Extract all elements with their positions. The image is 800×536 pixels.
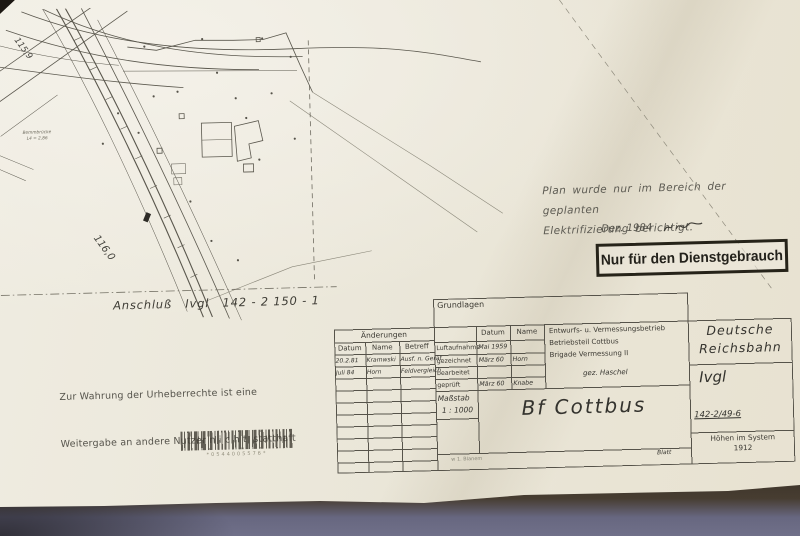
paper-sheet: 115,9 116,0 Bemmbrücke L4 = 2,86 Plan wu…: [0, 0, 800, 536]
drawing-border-dashed: [308, 40, 314, 280]
bridge-label-line1: Bemmbrücke: [22, 129, 51, 136]
buildings: [170, 121, 264, 185]
barcode: *0544005576*: [180, 429, 293, 459]
railway-tracks: [0, 0, 487, 326]
bridge-label-line2: L4 = 2,86: [27, 135, 48, 142]
dr-name-line1: Deutsche: [688, 321, 792, 339]
grundlagen-label: Grundlagen: [437, 300, 484, 310]
photo-of-railway-plan: 115,9 116,0 Bemmbrücke L4 = 2,86 Plan wu…: [0, 0, 800, 536]
aenderungen-header-betreff: Betreff: [399, 342, 434, 351]
basis-header-name: Name: [510, 327, 544, 336]
km-label-116-0: 116,0: [91, 233, 117, 263]
signature-icon: [662, 218, 704, 235]
aenderung-row2-betreff: Feldvergleich: [401, 367, 441, 375]
basis-row2-name: Horn: [513, 356, 528, 363]
basis-row2-label: gezeichnet: [437, 357, 472, 365]
massstab-value: 1 : 1000: [442, 405, 473, 415]
basis-row1-label: Luftaufnahme: [436, 344, 480, 352]
revision-date: Dez. 1984: [601, 222, 652, 234]
aenderung-row2-datum: Juli 84: [336, 369, 355, 376]
ivgl-label: Ivgl: [699, 368, 726, 387]
copyright-line1: Zur Wahrung der Urheberrechte ist eine: [59, 384, 294, 406]
revision-date-row: Dez. 1984: [601, 218, 704, 237]
aenderung-row2-name: Horn: [367, 369, 382, 376]
basis-row4-name: Knabe: [513, 380, 533, 388]
form-print-note: w 1. Blanem: [451, 456, 482, 463]
map-labels: 115,9 116,0 Bemmbrücke L4 = 2,86: [12, 33, 117, 265]
aenderung-row1-name: Kramwski: [367, 356, 396, 364]
dr-name-line2: Reichsbahn: [688, 339, 792, 357]
plan-number: 142-2/49-6: [694, 409, 741, 420]
basis-row1-datum: Mai 1959: [478, 343, 507, 351]
sheet-content: 115,9 116,0 Bemmbrücke L4 = 2,86 Plan wu…: [0, 0, 800, 536]
basis-row4-datum: März 60: [479, 380, 504, 388]
betrieb-signed-by: gez. Haschel: [583, 368, 628, 377]
dienstgebrauch-stamp: Nur für den Dienstgebrauch: [596, 239, 789, 277]
km-marker: [143, 212, 151, 222]
stamp-text: Nur für den Dienstgebrauch: [601, 247, 784, 268]
survey-points: [99, 36, 299, 265]
basis-row3-label: bearbeitet: [437, 369, 470, 377]
aenderung-row1-datum: 20.2.81: [336, 357, 359, 365]
basis-row2-datum: März 60: [479, 356, 504, 364]
massstab-label: Maßstab: [438, 393, 470, 403]
aenderungen-header-datum: Datum: [334, 344, 365, 353]
barcode-bars-icon: [180, 429, 292, 451]
title-block: Grundlagen Änderungen Datum Name Betreff…: [333, 290, 795, 474]
blatt-label: Blatt: [657, 449, 671, 456]
revision-note-line1: Plan wurde nur im Bereich der geplanten: [542, 175, 773, 221]
aenderungen-header-name: Name: [365, 343, 399, 352]
basis-row4-label: geprüft: [437, 381, 460, 389]
km-label-115-9: 115,9: [12, 36, 35, 62]
copyright-note: Zur Wahrung der Urheberrechte ist eine W…: [58, 353, 296, 483]
basis-header-datum: Datum: [476, 328, 510, 337]
